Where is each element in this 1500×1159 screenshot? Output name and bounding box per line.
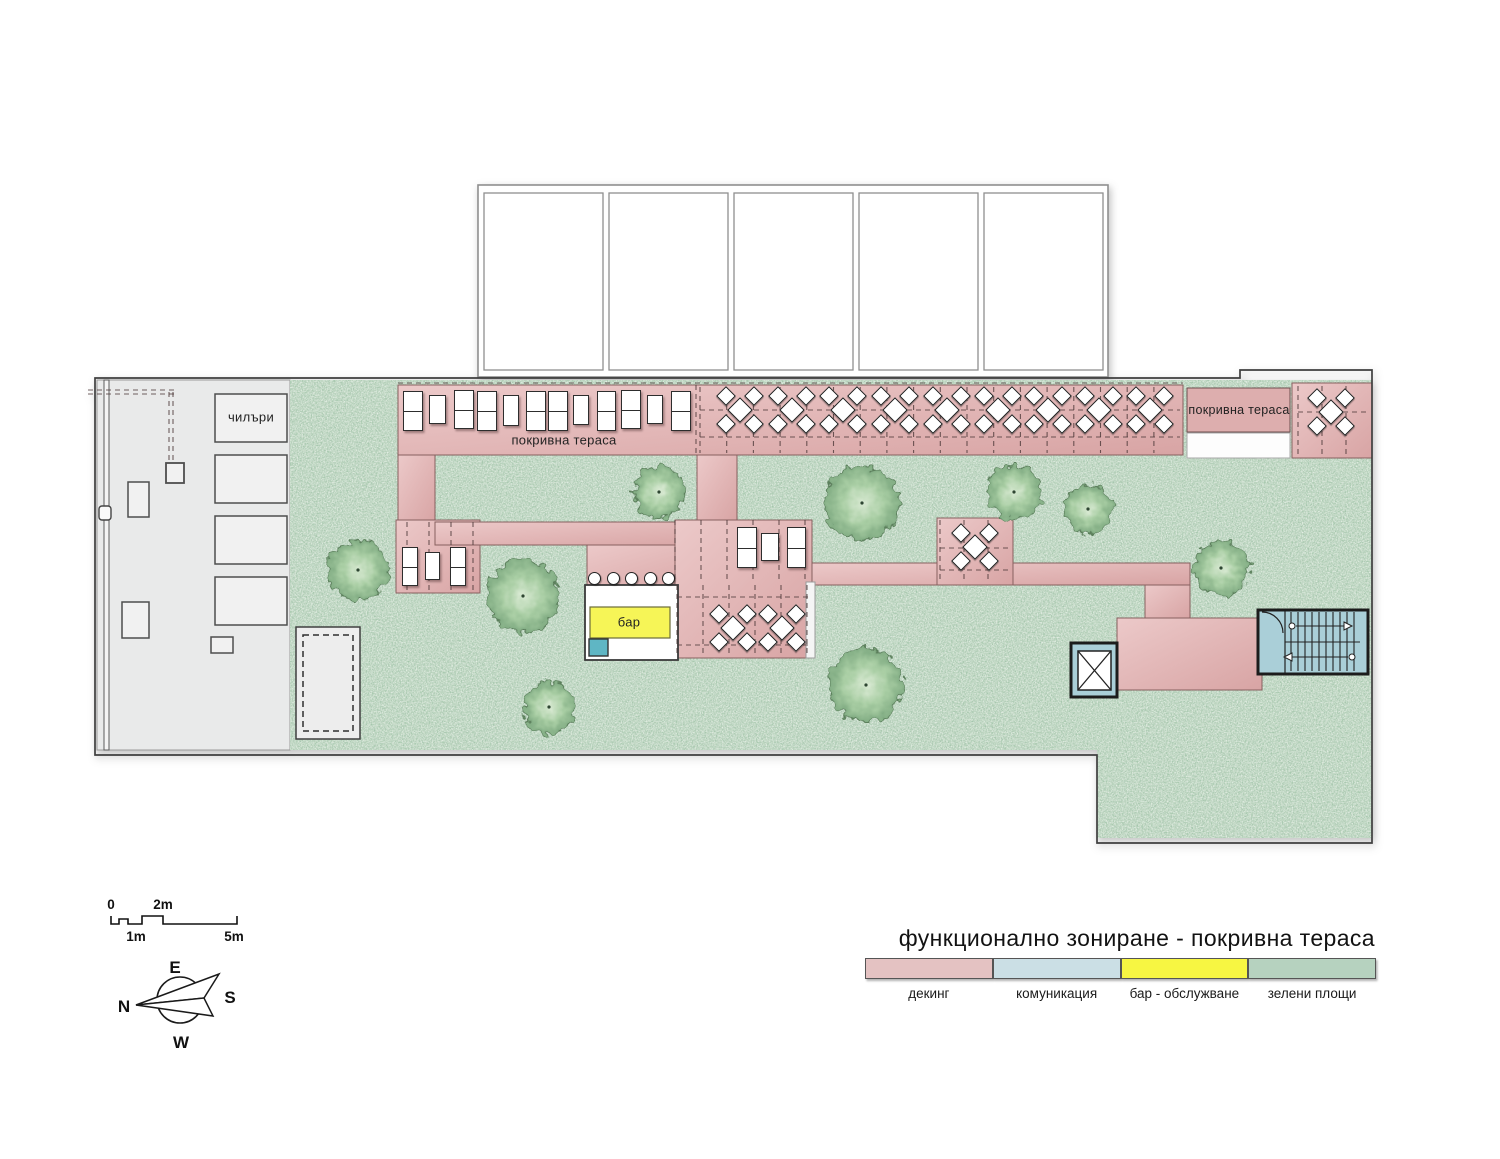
chillers-label: чилъри [228, 410, 274, 425]
legend-swatch [1248, 958, 1376, 979]
roof-terrace-label-right: покривна тераса [1188, 403, 1289, 417]
scale-bar: 0 2m 1m 5m [80, 880, 280, 950]
service-shaft [589, 639, 608, 656]
legend-swatch [865, 958, 993, 979]
legend-swatch [993, 958, 1121, 979]
scale-0: 0 [107, 897, 115, 912]
deck-connector-mid [697, 455, 737, 520]
compass-w: W [173, 1033, 190, 1052]
legend-item: комуникация [993, 958, 1121, 1001]
roof-terrace-plan-sheet: чилъри покривна тераса покривна тераса б… [0, 0, 1500, 1159]
screen-wall [806, 582, 815, 658]
skylight-panels [484, 193, 1103, 370]
deck-connector-left [398, 455, 435, 522]
roof-terrace-label-top: покривна тераса [511, 433, 616, 448]
equipment-pad [296, 627, 360, 739]
deck-table-bay [937, 518, 1013, 585]
deck-neck [1145, 585, 1190, 618]
rooftop-structure [478, 185, 1108, 377]
legend-label: бар - обслужване [1121, 986, 1249, 1001]
legend-item: зелени площи [1248, 958, 1376, 1001]
legend-label: декинг [865, 986, 993, 1001]
compass-n: N [118, 997, 130, 1016]
elevator [1071, 643, 1117, 697]
deck-bar-terrace [675, 520, 812, 658]
legend-label: зелени площи [1248, 986, 1376, 1001]
legend-item: бар - обслужване [1121, 958, 1249, 1001]
wall-fitting [99, 506, 111, 520]
compass-rose: E S N W [105, 945, 265, 1055]
planter-box [1187, 433, 1290, 458]
parapet-wall [104, 380, 109, 750]
scale-2m: 2m [153, 897, 173, 912]
scale-1m: 1m [126, 929, 146, 944]
compass-e: E [169, 958, 180, 977]
bar-label: бар [618, 615, 641, 630]
deck-stair-landing [1117, 618, 1262, 690]
compass-s: S [224, 988, 235, 1007]
legend-item: декинг [865, 958, 993, 1001]
legend-swatch [1121, 958, 1249, 979]
page-title: функционално зониране - покривна тераса [899, 925, 1375, 952]
deck-right-section [1292, 383, 1372, 458]
legend-label: комуникация [993, 986, 1121, 1001]
legend: декингкомуникациябар - обслужванезелени … [865, 958, 1376, 1001]
scale-5m: 5m [224, 929, 244, 944]
staircase [1258, 610, 1368, 674]
